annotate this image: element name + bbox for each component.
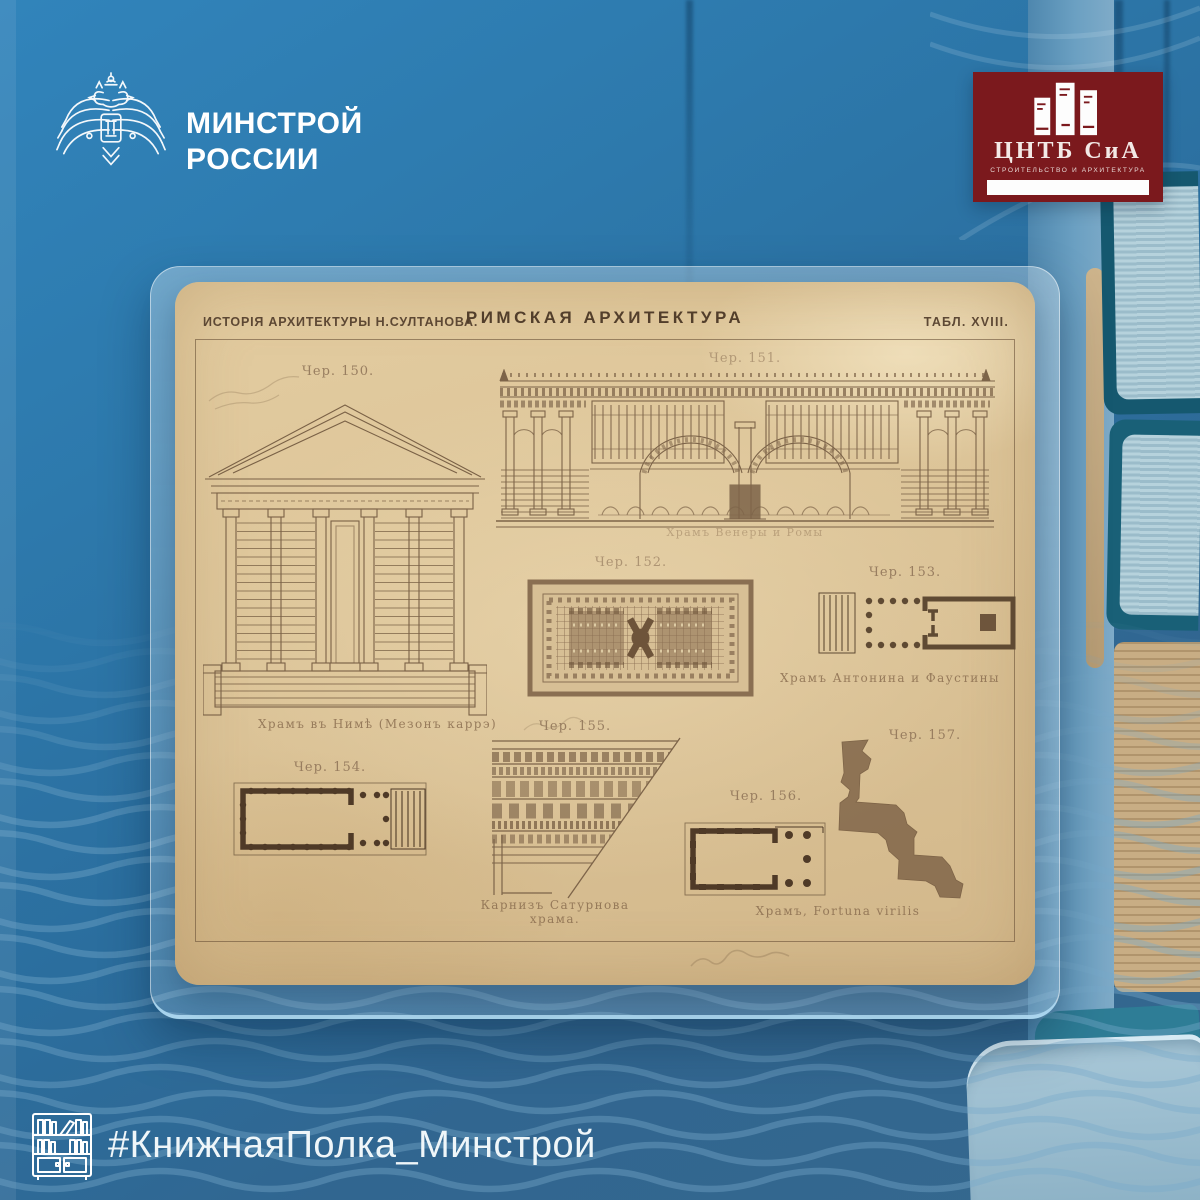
double-headed-eagle-icon <box>52 66 170 194</box>
plate-source-title: ИСТОРІЯ АРХИТЕКТУРЫ Н.СУЛТАНОВА. <box>203 315 478 329</box>
figure-label: Чер. 155. <box>527 719 623 734</box>
minstroy-line1: МИНСТРОЙ <box>186 106 363 142</box>
figure-caption: Храмъ Венеры и Ромы <box>645 526 845 539</box>
figure-155-drawing <box>490 737 687 899</box>
figure-150-drawing <box>203 391 487 717</box>
figure-caption: Храмъ Антонина и Фаустины <box>780 671 1000 685</box>
minstroy-wordmark: МИНСТРОЙ РОССИИ <box>186 106 363 178</box>
stacked-books-icon <box>1022 79 1114 137</box>
cntb-white-bar <box>987 180 1149 195</box>
book-plate: ИСТОРІЯ АРХИТЕКТУРЫ Н.СУЛТАНОВА. РИМСКАЯ… <box>175 282 1035 985</box>
figure-label: Чер. 152. <box>581 555 681 570</box>
figure-154-drawing <box>233 779 428 859</box>
figure-caption: Карнизъ Сатурнова храма. <box>455 898 655 926</box>
plate-table-number: ТАБЛ. XVIII. <box>924 315 1009 329</box>
figure-label: Чер. 156. <box>716 789 816 804</box>
campaign-hashtag: #КнижнаяПолка_Минстрой <box>108 1124 596 1167</box>
bookshelf-icon <box>30 1110 96 1184</box>
figure-label: Чер. 153. <box>855 565 955 580</box>
plate-main-title: РИМСКАЯ АРХИТЕКТУРА <box>465 308 745 328</box>
cntb-logo: ЦНТБ СиА СТРОИТЕЛЬСТВО И АРХИТЕКТУРА <box>973 72 1163 202</box>
figure-156-drawing <box>683 819 827 899</box>
figure-label: Чер. 151. <box>700 351 790 366</box>
figure-caption: Храмъ въ Нимѣ (Мезонъ каррэ) <box>235 717 520 731</box>
cntb-subtitle: СТРОИТЕЛЬСТВО И АРХИТЕКТУРА <box>990 167 1146 174</box>
figure-157-drawing <box>820 739 987 902</box>
cntb-title: ЦНТБ СиА <box>994 138 1142 165</box>
figure-151-drawing <box>490 369 1000 536</box>
figure-label: Чер. 150. <box>293 364 383 379</box>
minstroy-line2: РОССИИ <box>186 142 363 178</box>
poster-canvas: МИНСТРОЙ РОССИИ ЦНТБ СиА СТРОИТЕЛЬСТВО И… <box>0 0 1200 1200</box>
figure-caption: Храмъ, Fortuna virilis <box>738 904 938 918</box>
figure-152-drawing <box>527 579 754 697</box>
figure-153-drawing <box>817 585 1022 661</box>
figure-label: Чер. 154. <box>280 760 380 775</box>
pencil-scribble <box>685 942 795 978</box>
